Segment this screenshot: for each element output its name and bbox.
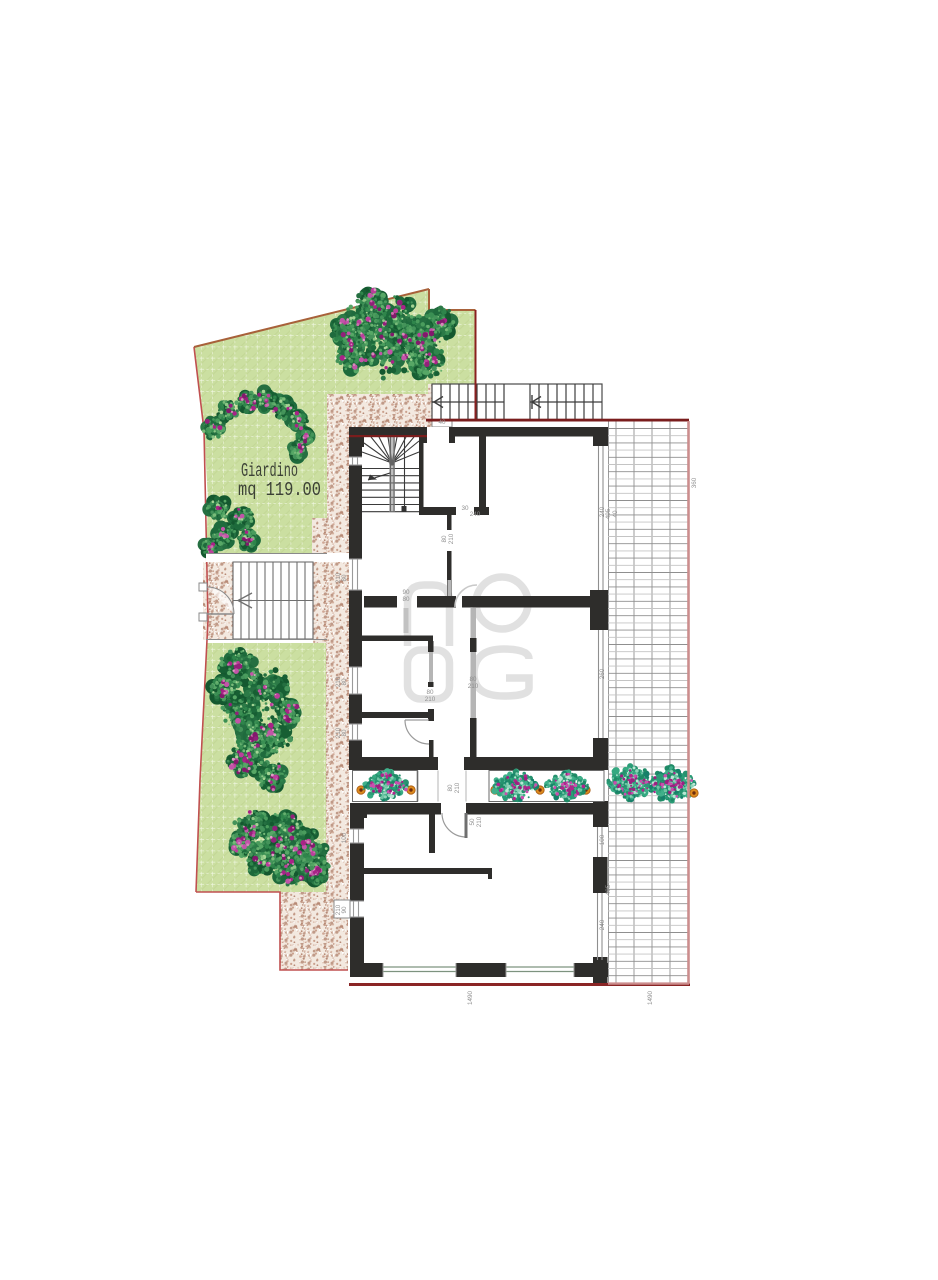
svg-text:mq 119.00: mq 119.00 — [238, 479, 321, 501]
